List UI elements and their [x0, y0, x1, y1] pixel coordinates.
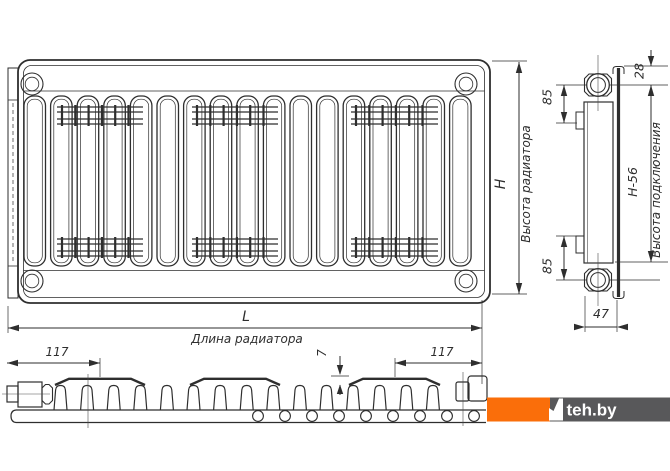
bracket-tab-bottom	[576, 236, 584, 253]
fin	[240, 386, 253, 411]
dim-depth: 47	[593, 306, 609, 321]
base-plate-cap	[11, 410, 16, 423]
fin	[214, 386, 227, 411]
fin	[81, 386, 94, 411]
manifold-circle	[307, 411, 318, 422]
manifold-circle	[253, 411, 264, 422]
fin	[267, 386, 280, 411]
manifold-circle	[334, 411, 345, 422]
fin	[347, 386, 360, 411]
left-end-body	[18, 382, 42, 407]
hump	[349, 379, 440, 385]
fin	[293, 386, 306, 411]
dim-right-pitch: 117	[431, 345, 454, 359]
fin	[160, 386, 173, 411]
valve-elbow	[468, 376, 487, 401]
side-view	[576, 55, 624, 306]
dim-connection-height: H-56	[625, 167, 640, 197]
convector-fins	[54, 386, 439, 411]
logo-text: teh.by	[567, 401, 618, 420]
hump	[55, 379, 145, 385]
length-dimensions: L Длина радиатора 117 117 7	[7, 300, 482, 395]
manifold-circles	[253, 411, 480, 422]
convector-welds	[57, 105, 438, 258]
dim-height-label: Высота радиатора	[519, 125, 533, 243]
watermark-logo: teh.by	[487, 398, 670, 422]
manifold-circle	[388, 411, 399, 422]
dim-connection-height-label: Высота подключения	[649, 122, 663, 258]
fin	[426, 386, 439, 411]
dim-bottom-connection: 85	[540, 258, 555, 274]
dim-height-letter: H	[493, 178, 509, 189]
rib-inner	[27, 99, 42, 263]
fin	[373, 386, 386, 411]
manifold-circle	[280, 411, 291, 422]
fin	[107, 386, 120, 411]
hump	[190, 379, 280, 385]
manifold-circle	[361, 411, 372, 422]
convector-side	[584, 102, 613, 263]
fin	[54, 386, 67, 411]
dim-length-letter: L	[242, 309, 250, 325]
manifold-circle	[415, 411, 426, 422]
height-dimension: H Высота радиатора	[492, 61, 533, 294]
front-view	[8, 60, 490, 303]
dim-rib-height: 7	[315, 349, 329, 357]
radiator-technical-drawing: H Высота радиатора 85	[0, 0, 670, 471]
fin	[400, 386, 413, 411]
fin	[187, 386, 200, 411]
bracket-tab-top	[576, 112, 584, 129]
rib-inner	[453, 99, 468, 263]
manifold-circle	[469, 411, 480, 422]
valve-body	[456, 382, 469, 401]
dim-length-label: Длина радиатора	[190, 332, 303, 346]
fin	[320, 386, 333, 411]
bottom-view	[2, 372, 487, 428]
dim-top-offset: 28	[632, 63, 647, 79]
fin	[134, 386, 147, 411]
dim-left-pitch: 117	[46, 345, 69, 359]
dim-top-connection: 85	[540, 89, 555, 105]
panel-ribs	[24, 96, 471, 266]
convector-humps	[55, 379, 440, 385]
rib-inner	[160, 99, 175, 263]
rib-inner	[293, 99, 308, 263]
logo-orange-block	[487, 398, 550, 422]
rib-inner	[320, 99, 335, 263]
manifold-circle	[442, 411, 453, 422]
